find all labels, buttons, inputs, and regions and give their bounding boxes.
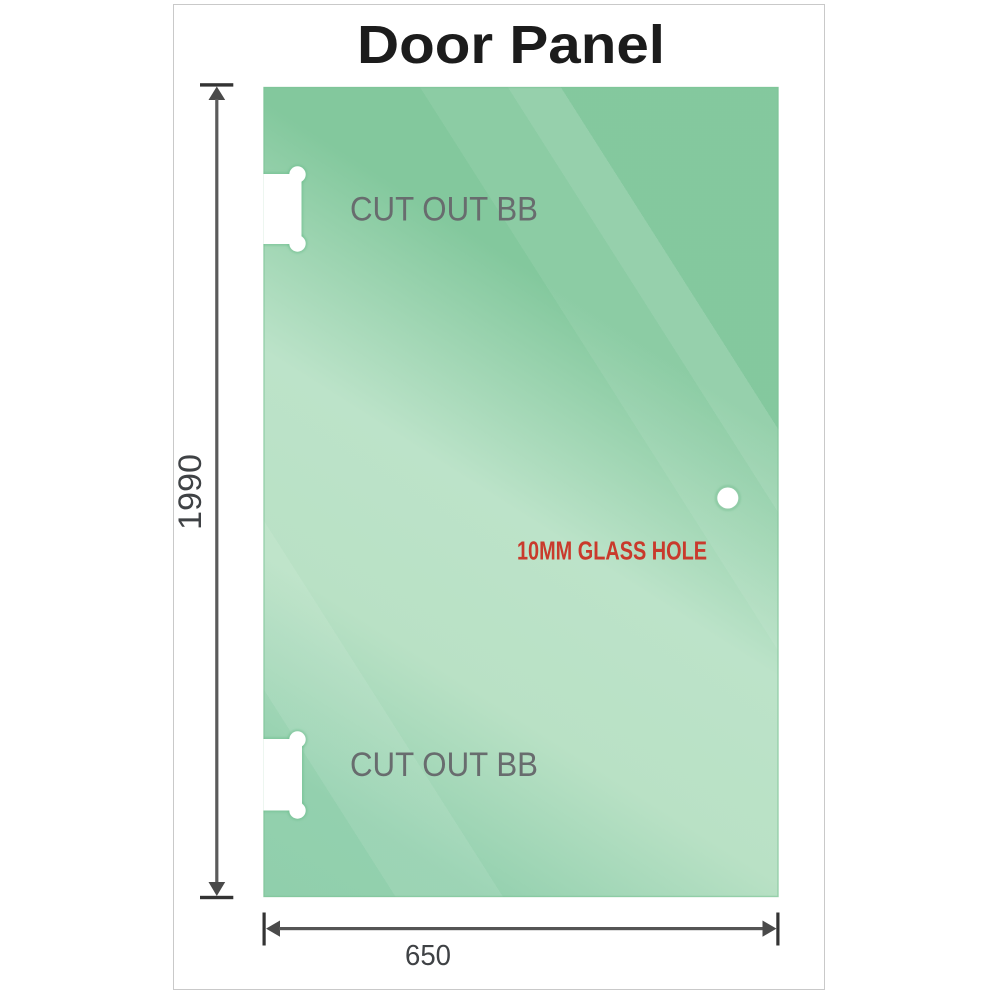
- svg-text:1990: 1990: [172, 454, 208, 530]
- svg-text:650: 650: [405, 940, 451, 972]
- svg-text:10MM GLASS HOLE: 10MM GLASS HOLE: [517, 536, 707, 566]
- svg-text:CUT OUT BB: CUT OUT BB: [350, 191, 538, 229]
- svg-text:Door Panel: Door Panel: [357, 15, 665, 75]
- svg-text:CUT OUT BB: CUT OUT BB: [350, 746, 538, 784]
